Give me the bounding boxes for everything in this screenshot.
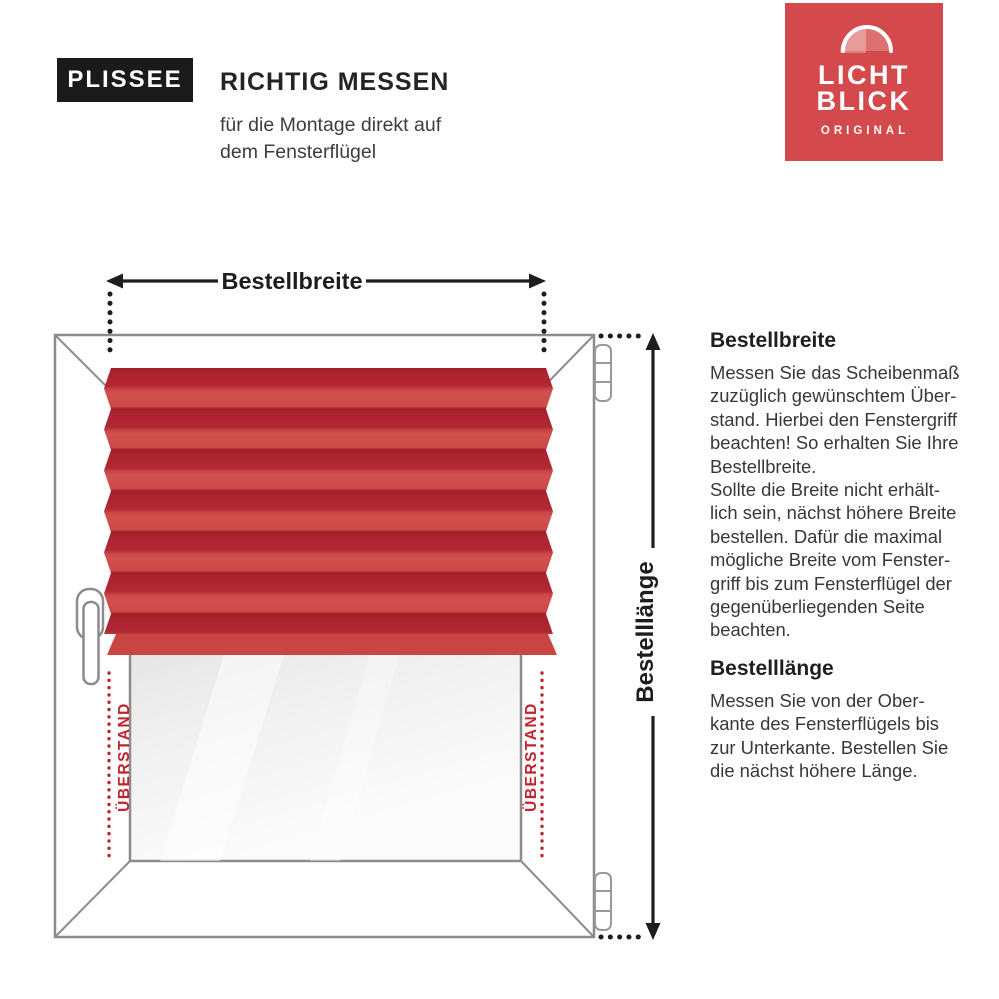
arrowhead-left: [106, 274, 123, 289]
arrowhead-up: [646, 333, 661, 350]
logo-text-original: ORIGINAL: [787, 125, 943, 137]
window-measurement-diagram: Bestellbreite Bestelllänge ÜBERSTAND ÜBE…: [0, 0, 700, 999]
length-measure: Bestelllänge: [601, 333, 661, 940]
measuring-guide-page: PLISSEE RICHTIG MESSEN für die Montage d…: [0, 0, 999, 999]
length-arrow-label: Bestelllänge: [632, 561, 659, 702]
plissee-blind: [104, 368, 553, 634]
window-hinges: [595, 345, 611, 930]
logo-text-line2: BLICK: [785, 86, 943, 117]
overhang-left-label: ÜBERSTAND: [116, 702, 133, 812]
brand-logo: LICHT BLICK ORIGINAL: [785, 3, 943, 161]
arrowhead-down: [646, 923, 661, 940]
section-heading-bestelllaenge: Bestelllänge: [710, 657, 834, 681]
hinge-bottom: [595, 873, 611, 930]
arrowhead-right: [529, 274, 546, 289]
plissee-bottom-rail: [107, 634, 557, 655]
hinge-top: [595, 345, 611, 401]
section-body-bestelllaenge: Messen Sie von der Ober- kante des Fenst…: [710, 689, 999, 783]
section-heading-bestellbreite: Bestellbreite: [710, 329, 836, 353]
section-body-bestellbreite: Messen Sie das Scheibenmaß zuzüglich gew…: [710, 361, 999, 642]
sun-dome: [843, 27, 891, 51]
overhang-right-label: ÜBERSTAND: [523, 702, 540, 812]
width-arrow-label: Bestellbreite: [221, 268, 362, 294]
handle-lever: [84, 602, 99, 684]
